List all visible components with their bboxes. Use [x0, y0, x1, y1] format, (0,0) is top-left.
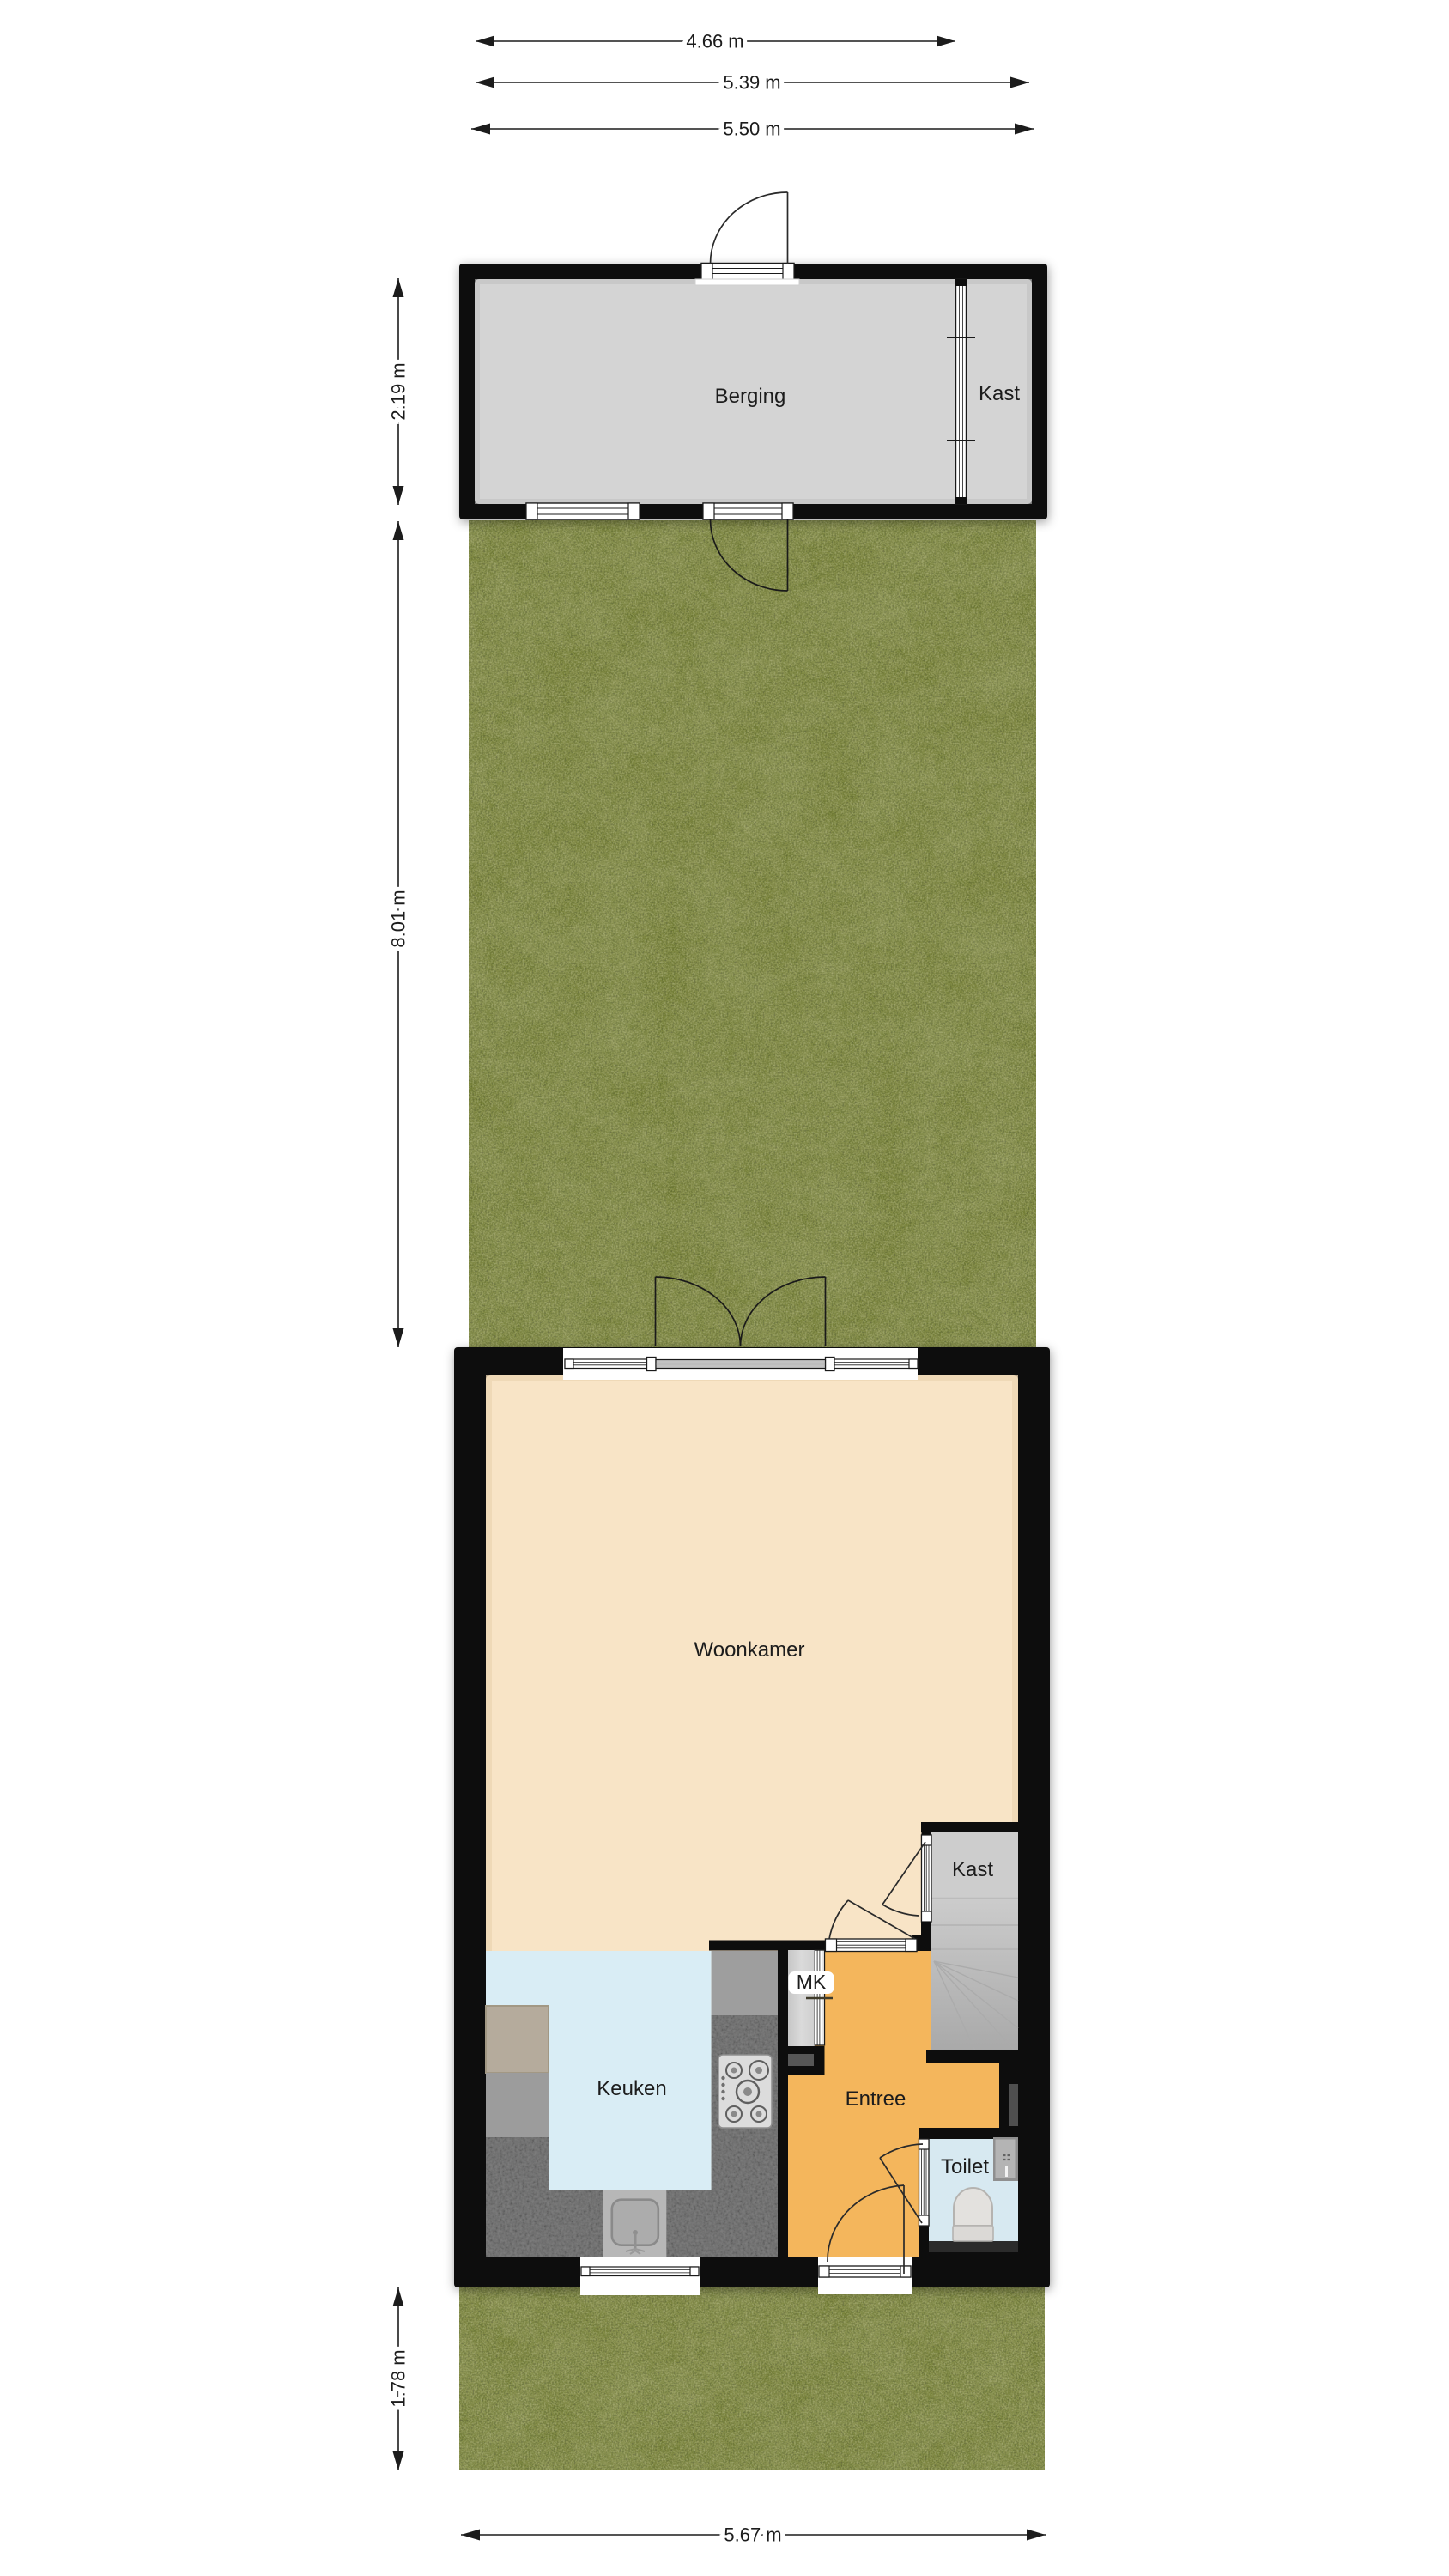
svg-text:5.67 m: 5.67 m — [724, 2524, 781, 2546]
svg-text:Woonkamer: Woonkamer — [694, 1638, 805, 1662]
svg-text:Kast: Kast — [952, 1858, 993, 1881]
svg-text:MK: MK — [797, 1971, 827, 1993]
svg-text:Berging: Berging — [715, 385, 786, 408]
svg-text:Entree: Entree — [846, 2087, 906, 2111]
svg-text:Toilet: Toilet — [941, 2155, 989, 2178]
svg-text:1.78 m: 1.78 m — [388, 2349, 409, 2407]
svg-text:Kast: Kast — [979, 382, 1020, 405]
svg-text:8.01 m: 8.01 m — [388, 890, 409, 947]
svg-text:5.39 m: 5.39 m — [723, 72, 780, 94]
svg-text:Keuken: Keuken — [597, 2077, 666, 2100]
svg-text:2.19 m: 2.19 m — [388, 362, 409, 420]
svg-text:4.66 m: 4.66 m — [686, 31, 743, 52]
svg-text:5.50 m: 5.50 m — [723, 118, 780, 140]
